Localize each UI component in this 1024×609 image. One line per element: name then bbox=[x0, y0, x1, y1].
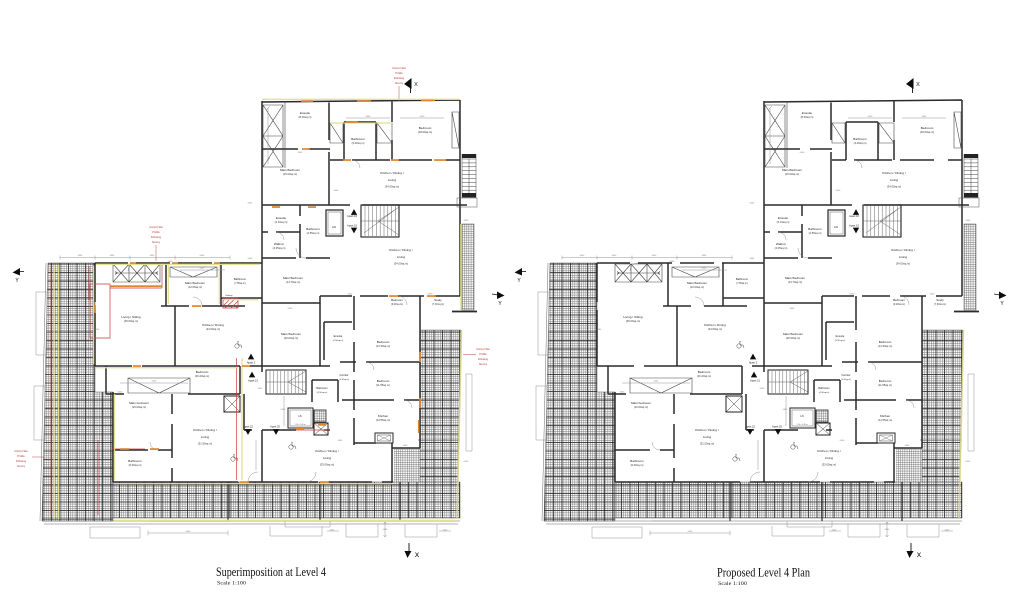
svg-text:(34.00sq.m): (34.00sq.m) bbox=[394, 262, 408, 266]
svg-text:Correct Site: Correct Site bbox=[392, 66, 406, 70]
svg-text:(14.55sq.m): (14.55sq.m) bbox=[376, 418, 390, 422]
svg-text:(4.30sq.m): (4.30sq.m) bbox=[339, 379, 349, 381]
svg-text:Living: Living bbox=[388, 178, 396, 182]
svg-text:Main Bedroom: Main Bedroom bbox=[283, 276, 304, 280]
svg-text:Ensuite: Ensuite bbox=[300, 111, 311, 115]
svg-text:Profile: Profile bbox=[395, 71, 403, 75]
svg-text:(7.50sq.m): (7.50sq.m) bbox=[234, 282, 246, 285]
svg-text:(4.55sq.m): (4.55sq.m) bbox=[307, 231, 320, 235]
svg-text:(14.70sq.m): (14.70sq.m) bbox=[286, 280, 300, 284]
svg-text:(11.55sq.m): (11.55sq.m) bbox=[376, 383, 390, 387]
svg-text:Lift: Lift bbox=[332, 225, 336, 229]
svg-text:(7.00sq.m): (7.00sq.m) bbox=[432, 303, 444, 306]
svg-text:Kitchen / Dining /: Kitchen / Dining / bbox=[315, 449, 339, 453]
svg-text:1.10 x 1.40 m: 1.10 x 1.40 m bbox=[295, 424, 306, 426]
svg-text:Bedroom: Bedroom bbox=[419, 126, 432, 130]
svg-text:(4.50sq.m): (4.50sq.m) bbox=[317, 392, 328, 394]
svg-text:Kitchen / Dining /: Kitchen / Dining / bbox=[380, 171, 404, 175]
svg-text:Scale 1:100: Scale 1:100 bbox=[217, 581, 246, 587]
svg-text:Superimposition at Level 4: Superimposition at Level 4 bbox=[216, 565, 327, 579]
svg-text:Correct Site: Correct Site bbox=[149, 225, 163, 229]
svg-text:(16.00sq.m): (16.00sq.m) bbox=[132, 405, 146, 409]
svg-text:(16.00sq.m): (16.00sq.m) bbox=[283, 172, 297, 176]
svg-text:Apart 2: Apart 2 bbox=[247, 361, 256, 365]
svg-text:(12.00sq.m): (12.00sq.m) bbox=[188, 285, 202, 289]
svg-text:(24.00sq.m): (24.00sq.m) bbox=[206, 327, 220, 331]
svg-text:Survey: Survey bbox=[152, 240, 161, 244]
svg-text:Apart 20: Apart 20 bbox=[270, 425, 280, 429]
svg-text:Bathroom: Bathroom bbox=[234, 277, 247, 281]
svg-text:Kitchen / Dining /: Kitchen / Dining / bbox=[389, 248, 413, 252]
svg-text:Main Bedroom: Main Bedroom bbox=[185, 281, 206, 285]
svg-text:following: following bbox=[16, 459, 27, 463]
svg-text:(34.00sq.m): (34.00sq.m) bbox=[385, 185, 399, 189]
svg-text:Survey: Survey bbox=[479, 362, 488, 366]
svg-text:Main Bedroom: Main Bedroom bbox=[281, 332, 302, 336]
svg-text:Living: Living bbox=[201, 435, 209, 439]
svg-text:Kitchen: Kitchen bbox=[378, 414, 389, 418]
svg-text:Bedroom: Bedroom bbox=[377, 379, 390, 383]
svg-text:Profile: Profile bbox=[152, 230, 160, 234]
svg-text:Bathroom: Bathroom bbox=[306, 227, 320, 231]
svg-text:(4.05sq.m): (4.05sq.m) bbox=[273, 246, 286, 250]
svg-text:Study: Study bbox=[434, 298, 442, 302]
svg-text:Walk-in: Walk-in bbox=[274, 242, 284, 246]
svg-text:(4.10sq.m): (4.10sq.m) bbox=[275, 220, 288, 224]
svg-text:Bedroom: Bedroom bbox=[391, 298, 403, 302]
svg-text:(31.50sq.m): (31.50sq.m) bbox=[198, 442, 212, 446]
svg-text:Main Bedroom: Main Bedroom bbox=[280, 168, 301, 172]
svg-text:Kitchen / Dining: Kitchen / Dining bbox=[202, 323, 224, 327]
svg-text:Survey: Survey bbox=[395, 81, 404, 85]
svg-text:Apart 22: Apart 22 bbox=[243, 425, 253, 429]
svg-text:Bedroom: Bedroom bbox=[196, 370, 209, 374]
svg-text:Correct Site: Correct Site bbox=[476, 347, 490, 351]
svg-text:Proposed Level 4 Plan: Proposed Level 4 Plan bbox=[717, 566, 811, 580]
svg-text:Corridor: Corridor bbox=[339, 374, 348, 377]
svg-text:Kitchen / Dining /: Kitchen / Dining / bbox=[193, 428, 217, 432]
svg-text:Apart 21: Apart 21 bbox=[248, 379, 258, 383]
svg-text:(18.00sq.m): (18.00sq.m) bbox=[418, 130, 432, 134]
svg-text:Main bedroom: Main bedroom bbox=[129, 401, 149, 405]
svg-text:Apart 16: Apart 16 bbox=[347, 214, 357, 218]
svg-text:(16.20sq.m): (16.20sq.m) bbox=[195, 374, 209, 378]
svg-text:(9.00sq.m): (9.00sq.m) bbox=[391, 303, 403, 306]
svg-text:Bathroom: Bathroom bbox=[128, 459, 142, 463]
svg-text:Ensuite: Ensuite bbox=[334, 334, 343, 338]
svg-text:(3.00sq.m): (3.00sq.m) bbox=[352, 141, 365, 145]
svg-text:Apart 15: Apart 15 bbox=[347, 224, 357, 228]
svg-text:(8.00sq.m): (8.00sq.m) bbox=[299, 115, 312, 119]
svg-text:(6.00sq.m): (6.00sq.m) bbox=[129, 463, 142, 467]
svg-text:X: X bbox=[414, 82, 418, 88]
svg-text:(20.00sq.m): (20.00sq.m) bbox=[284, 336, 298, 340]
svg-text:Ensuite: Ensuite bbox=[276, 216, 287, 220]
svg-text:following: following bbox=[394, 76, 405, 80]
svg-text:Bathroom: Bathroom bbox=[316, 386, 327, 390]
svg-text:Living: Living bbox=[323, 456, 331, 460]
svg-text:following: following bbox=[478, 357, 489, 361]
svg-text:Bedroom: Bedroom bbox=[377, 340, 390, 344]
svg-text:following: following bbox=[151, 235, 162, 239]
svg-text:(33.00sq.m): (33.00sq.m) bbox=[320, 463, 334, 467]
svg-text:(3.50sq.m): (3.50sq.m) bbox=[333, 340, 344, 342]
svg-text:Survey: Survey bbox=[17, 464, 26, 468]
svg-text:Scale 1:100: Scale 1:100 bbox=[718, 581, 747, 587]
svg-text:(25.00sq.m): (25.00sq.m) bbox=[124, 319, 138, 323]
svg-text:Bathroom: Bathroom bbox=[351, 137, 365, 141]
svg-text:Living: Living bbox=[397, 255, 405, 259]
svg-text:Profile: Profile bbox=[17, 454, 25, 458]
svg-text:Hallway: Hallway bbox=[225, 295, 232, 297]
svg-text:Lift: Lift bbox=[298, 415, 302, 418]
svg-text:Profile: Profile bbox=[479, 352, 487, 356]
svg-text:Living / Sitting: Living / Sitting bbox=[121, 315, 141, 319]
svg-text:(13.30sq.m): (13.30sq.m) bbox=[376, 344, 390, 348]
svg-text:Correct Site: Correct Site bbox=[14, 449, 28, 453]
